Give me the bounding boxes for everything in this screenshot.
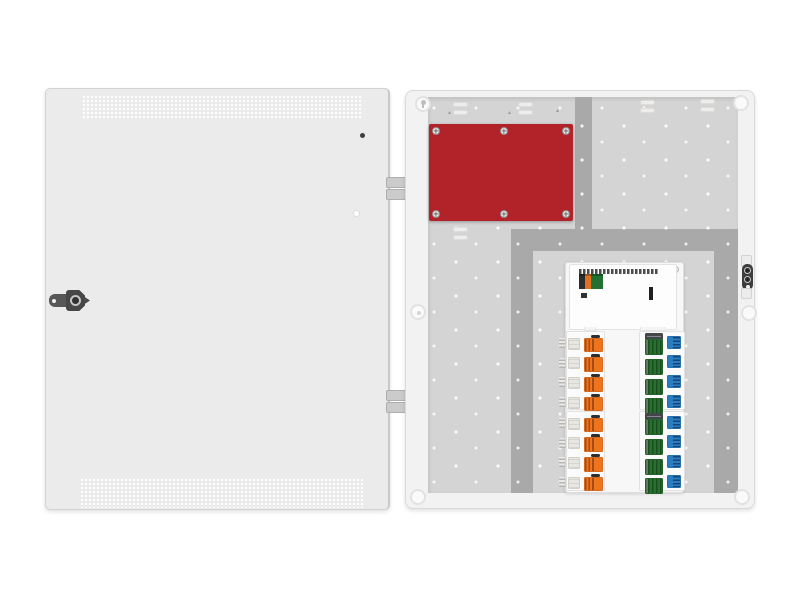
breaker-body-right-lower: [639, 411, 685, 491]
screw-icon: [562, 210, 570, 218]
lock-keyway-icon: [70, 295, 81, 306]
breaker-body-right-upper: [639, 331, 685, 410]
mounting-slot: [640, 108, 655, 113]
enclosure-door[interactable]: [45, 88, 390, 510]
latch-tab-bottom: [741, 288, 752, 299]
lock-cam-tip: [84, 297, 90, 305]
mounting-slot: [453, 102, 468, 107]
mounting-hole-top-right: [733, 95, 749, 111]
hinge-leaf: [386, 189, 406, 200]
breaker-body-left-upper: [566, 331, 605, 410]
terminal-strip: [579, 274, 659, 289]
frame-bump-right: [741, 305, 757, 321]
mounting-slot: [518, 110, 533, 115]
hinge-leaf: [386, 177, 406, 188]
hinge-leaf: [386, 402, 406, 413]
terminal-block-black: [579, 274, 585, 289]
mounting-hole-middle-left: [410, 304, 426, 320]
module-jumper: [581, 293, 587, 298]
mounting-slot: [453, 235, 468, 240]
screw-icon: [562, 127, 570, 135]
lock-pin-icon: [52, 299, 56, 303]
mounting-slot: [700, 99, 715, 104]
module-connector-bar: [649, 287, 653, 300]
screw-icon: [500, 210, 508, 218]
controller-module: [569, 264, 677, 330]
mounting-hole-bottom-right: [734, 489, 750, 505]
keyhole-icon: [421, 100, 426, 105]
electrical-enclosure-illustration: [0, 0, 800, 600]
door-screw-dark: [360, 133, 365, 138]
vent-grid-top: [82, 95, 363, 119]
mounting-rail-vertical-right: [714, 251, 738, 493]
mounting-slot: [640, 100, 655, 105]
red-cover-plate: [429, 124, 573, 221]
breaker-body-left-lower: [566, 411, 605, 491]
screw-icon: [432, 127, 440, 135]
mounting-hole-top-left: [415, 96, 431, 112]
mounting-slot: [453, 227, 468, 232]
mounting-hole-bottom-left: [410, 489, 426, 505]
screw-icon: [432, 210, 440, 218]
hinge-bottom: [386, 390, 406, 414]
mounting-slot: [453, 110, 468, 115]
door-screw-light: [354, 211, 359, 216]
vent-grid-bottom: [80, 478, 363, 508]
hinge-leaf: [386, 390, 406, 401]
mounting-rail-horizontal: [511, 229, 738, 251]
door-lock-handle[interactable]: [49, 290, 93, 311]
latch-ring-dot: [744, 267, 751, 274]
mounting-rail-vertical-top: [575, 97, 592, 231]
hinge-top: [386, 177, 406, 201]
screw-icon: [500, 127, 508, 135]
hole-dot: [417, 311, 421, 315]
mounting-slot: [518, 102, 533, 107]
mounting-slot: [700, 107, 715, 112]
mounting-rail-vertical-left: [511, 251, 533, 493]
latch-ring-dot: [744, 276, 751, 283]
